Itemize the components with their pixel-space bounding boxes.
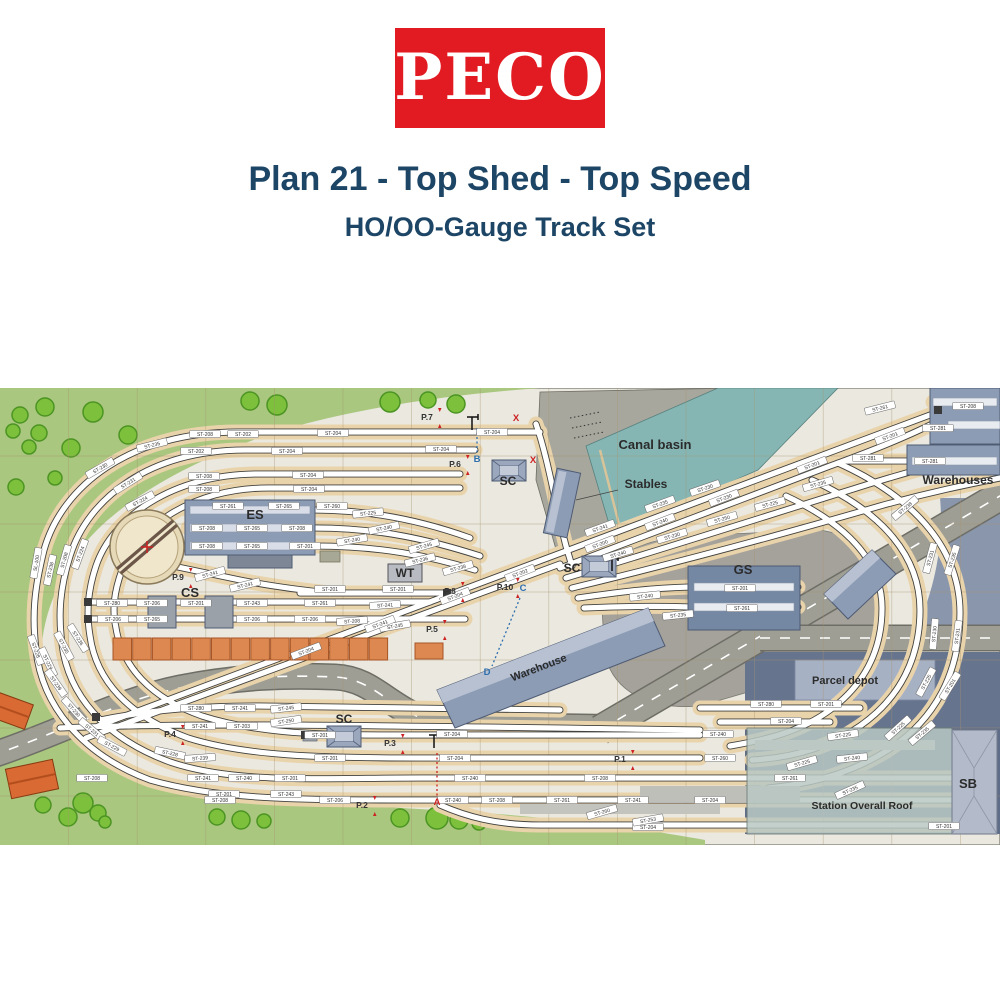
area-label: Warehouses: [923, 473, 994, 487]
svg-text:ST-208: ST-208: [344, 618, 361, 625]
svg-text:ST-241: ST-241: [192, 724, 208, 730]
track-part-label: ST-208: [282, 524, 313, 532]
svg-text:ST-281: ST-281: [922, 459, 938, 465]
track-part-label: ST-204: [272, 447, 303, 455]
area-label: Stables: [625, 477, 668, 491]
track-part-label: ST-204: [771, 717, 802, 725]
area-label: SC: [336, 712, 353, 726]
track-part-label: ST-201: [315, 585, 346, 593]
track-part-label: ST-261: [775, 774, 806, 782]
point-label: P.9: [172, 572, 184, 582]
svg-text:ST-208: ST-208: [489, 798, 505, 804]
svg-text:ST-206: ST-206: [144, 601, 160, 607]
area-label: SC: [564, 561, 581, 575]
point-label: P.7: [421, 412, 433, 422]
route-letter-marker: B: [474, 454, 481, 465]
track-part-label: ST-206: [320, 796, 351, 804]
track-part-label: ST-241: [225, 704, 256, 712]
track-plan-image: ST-208ST-202ST-204ST-204ST-202ST-204ST-2…: [0, 388, 1000, 845]
track-part-label: ST-208: [190, 430, 221, 438]
track-part-label: ST-202: [181, 447, 212, 455]
svg-text:ST-203: ST-203: [234, 724, 250, 730]
peco-logo-text: PECO: [394, 46, 606, 110]
track-plan-svg: ST-208ST-202ST-204ST-204ST-202ST-204ST-2…: [0, 388, 1000, 845]
plan-title: Plan 21 - Top Shed - Top Speed: [0, 160, 1000, 199]
area-label: SC: [500, 474, 517, 488]
track-part-label: ST-240: [229, 774, 260, 782]
svg-text:ST-206: ST-206: [302, 617, 318, 623]
track-part-label: ST-204: [318, 429, 349, 437]
svg-text:ST-208: ST-208: [592, 776, 608, 782]
track-part-label: ST-202: [228, 430, 259, 438]
svg-text:ST-204: ST-204: [444, 732, 460, 738]
svg-text:ST-265: ST-265: [244, 544, 260, 550]
track-part-label: ST-281: [923, 424, 954, 432]
svg-text:ST-208: ST-208: [199, 526, 215, 532]
svg-text:ST-280: ST-280: [188, 706, 204, 712]
svg-text:ST-201: ST-201: [322, 587, 338, 593]
track-part-label: ST-241: [618, 796, 649, 804]
track-part-label: ST-281: [853, 454, 884, 462]
track-part-label: ST-203: [227, 722, 258, 730]
svg-text:ST-201: ST-201: [732, 586, 748, 592]
track-part-label: ST-201: [315, 754, 346, 762]
svg-text:ST-201: ST-201: [297, 544, 313, 550]
svg-text:ST-260: ST-260: [324, 504, 340, 510]
peco-logo: PECO: [395, 28, 605, 128]
track-part-label: ST-201: [725, 584, 756, 592]
route-letter-marker: X: [530, 455, 537, 466]
track-part-label: ST-208: [953, 402, 984, 410]
svg-text:ST-201: ST-201: [188, 601, 204, 607]
svg-text:ST-204: ST-204: [325, 431, 341, 437]
point-label: P.8: [444, 586, 456, 596]
point-label: P.5: [426, 624, 438, 634]
track-part-label: ST-201: [811, 700, 842, 708]
svg-text:ST-208: ST-208: [84, 776, 100, 782]
track-part-label: ST-240: [455, 774, 486, 782]
area-label: Canal basin: [619, 437, 692, 452]
svg-text:ST-204: ST-204: [447, 756, 463, 762]
svg-text:ST-208: ST-208: [289, 526, 305, 532]
track-part-label: ST-261: [213, 502, 244, 510]
svg-text:ST-240: ST-240: [710, 732, 726, 738]
area-label: WT: [396, 566, 415, 580]
svg-text:ST-202: ST-202: [188, 449, 204, 455]
svg-text:ST-281: ST-281: [930, 426, 946, 432]
svg-text:ST-204: ST-204: [433, 447, 449, 453]
area-label: GS: [734, 562, 753, 577]
svg-text:ST-201: ST-201: [818, 702, 834, 708]
track-part-label: ST-261: [727, 604, 758, 612]
svg-text:ST-208: ST-208: [960, 404, 976, 410]
track-part-label: ST-208: [192, 542, 223, 550]
track-part-label: ST-208: [189, 472, 220, 480]
svg-text:ST-206: ST-206: [327, 798, 343, 804]
plan-subtitle: HO/OO-Gauge Track Set: [0, 212, 1000, 243]
svg-text:ST-281: ST-281: [860, 456, 876, 462]
svg-text:ST-241: ST-241: [232, 706, 248, 712]
svg-text:ST-206: ST-206: [244, 617, 260, 623]
track-part-label: ST-206: [137, 599, 168, 607]
svg-text:ST-204: ST-204: [300, 473, 316, 479]
track-part-label: ST-208: [189, 485, 220, 493]
track-part-label: ST-204: [293, 471, 324, 479]
svg-text:ST-204: ST-204: [702, 798, 718, 804]
track-part-label: ST-261: [547, 796, 578, 804]
svg-text:ST-243: ST-243: [278, 792, 294, 798]
track-part-label: ST-281: [915, 457, 946, 465]
point-label: P.10: [497, 582, 514, 592]
track-part-label: ST-204: [426, 445, 457, 453]
svg-text:ST-206: ST-206: [105, 617, 121, 623]
svg-text:ST-240: ST-240: [445, 798, 461, 804]
track-part-label: ST-208: [77, 774, 108, 782]
svg-text:ST-265: ST-265: [276, 504, 292, 510]
point-label: P.3: [384, 738, 396, 748]
svg-text:ST-261: ST-261: [554, 798, 570, 804]
track-part-label: ST-241: [185, 722, 216, 730]
track-part-label: ST-201: [275, 774, 306, 782]
track-part-label: ST-204: [294, 485, 325, 493]
track-part-label: ST-243: [271, 790, 302, 798]
area-label: SB: [959, 776, 977, 791]
route-letter-marker: A: [434, 797, 441, 808]
track-part-label: ST-206: [237, 615, 268, 623]
svg-text:ST-261: ST-261: [782, 776, 798, 782]
svg-text:ST-241: ST-241: [195, 776, 211, 782]
svg-text:ST-241: ST-241: [625, 798, 641, 804]
route-letter-marker: D: [484, 667, 491, 678]
track-part-label: ST-241: [188, 774, 219, 782]
track-part-label: ST-265: [137, 615, 168, 623]
svg-text:ST-208: ST-208: [196, 487, 212, 493]
track-part-label: ST-201: [929, 822, 960, 830]
track-part-label: ST-201: [383, 585, 414, 593]
svg-text:ST-243: ST-243: [244, 601, 260, 607]
svg-text:ST-265: ST-265: [244, 526, 260, 532]
track-part-label: ST-204: [440, 754, 471, 762]
svg-text:ST-239: ST-239: [192, 755, 209, 762]
track-part-label: ST-280: [97, 599, 128, 607]
svg-text:ST-201: ST-201: [936, 824, 952, 830]
svg-text:ST-201: ST-201: [390, 587, 406, 593]
point-label: P.6: [449, 459, 461, 469]
route-letter-marker: C: [520, 583, 527, 594]
svg-text:ST-201: ST-201: [282, 776, 298, 782]
track-part-label: ST-206: [98, 615, 129, 623]
point-label: P.1: [614, 754, 626, 764]
svg-text:ST-280: ST-280: [104, 601, 120, 607]
svg-text:ST-204: ST-204: [301, 487, 317, 493]
track-part-label: ST-265: [237, 524, 268, 532]
track-part-label: ST-208: [205, 796, 236, 804]
svg-text:ST-204: ST-204: [640, 825, 656, 831]
svg-text:ST-201: ST-201: [322, 756, 338, 762]
track-part-label: ST-261: [305, 599, 336, 607]
area-label: Station Overall Roof: [812, 800, 913, 812]
track-part-label: ST-265: [237, 542, 268, 550]
track-part-label: ST-243: [237, 599, 268, 607]
page: { "logo": { "text": "PECO", "bg": "#e21a…: [0, 0, 1000, 1000]
track-part-label: ST-208: [192, 524, 223, 532]
track-part-label: ST-208: [585, 774, 616, 782]
area-label: ES: [246, 507, 264, 522]
svg-text:ST-260: ST-260: [712, 756, 728, 762]
route-letter-marker: X: [513, 413, 520, 424]
svg-text:ST-265: ST-265: [144, 617, 160, 623]
svg-text:ST-280: ST-280: [758, 702, 774, 708]
point-label: P.4: [164, 729, 176, 739]
point-label: P.2: [356, 800, 368, 810]
track-part-label: ST-260: [317, 502, 348, 510]
track-part-label: ST-240: [703, 730, 734, 738]
track-part-label: ST-201: [181, 599, 212, 607]
track-part-label: ST-240: [438, 796, 469, 804]
track-part-label: ST-206: [295, 615, 326, 623]
svg-text:ST-261: ST-261: [312, 601, 328, 607]
svg-text:ST-208: ST-208: [197, 432, 213, 438]
svg-text:ST-261: ST-261: [734, 606, 750, 612]
svg-text:ST-261: ST-261: [220, 504, 236, 510]
svg-text:ST-208: ST-208: [212, 798, 228, 804]
track-part-label: ST-204: [695, 796, 726, 804]
track-part-label: ST-208: [482, 796, 513, 804]
track-part-label: ST-201: [305, 731, 336, 739]
track-part-label: ST-204: [437, 730, 468, 738]
track-part-label: ST-201: [290, 542, 321, 550]
svg-text:ST-241: ST-241: [377, 602, 394, 609]
svg-text:ST-240: ST-240: [236, 776, 252, 782]
track-part-label: ST-280: [181, 704, 212, 712]
svg-text:ST-201: ST-201: [312, 733, 328, 739]
track-part-label: ST-260: [705, 754, 736, 762]
svg-text:ST-240: ST-240: [462, 776, 478, 782]
svg-text:ST-208: ST-208: [196, 474, 212, 480]
track-part-label: ST-265: [269, 502, 300, 510]
track-part-label: ST-204: [477, 428, 508, 436]
svg-text:ST-208: ST-208: [199, 544, 215, 550]
svg-text:ST-202: ST-202: [235, 432, 251, 438]
svg-text:ST-204: ST-204: [279, 449, 295, 455]
area-label: Parcel depot: [812, 675, 878, 687]
svg-text:ST-204: ST-204: [484, 430, 500, 436]
track-part-label: ST-280: [751, 700, 782, 708]
svg-text:ST-204: ST-204: [778, 719, 794, 725]
